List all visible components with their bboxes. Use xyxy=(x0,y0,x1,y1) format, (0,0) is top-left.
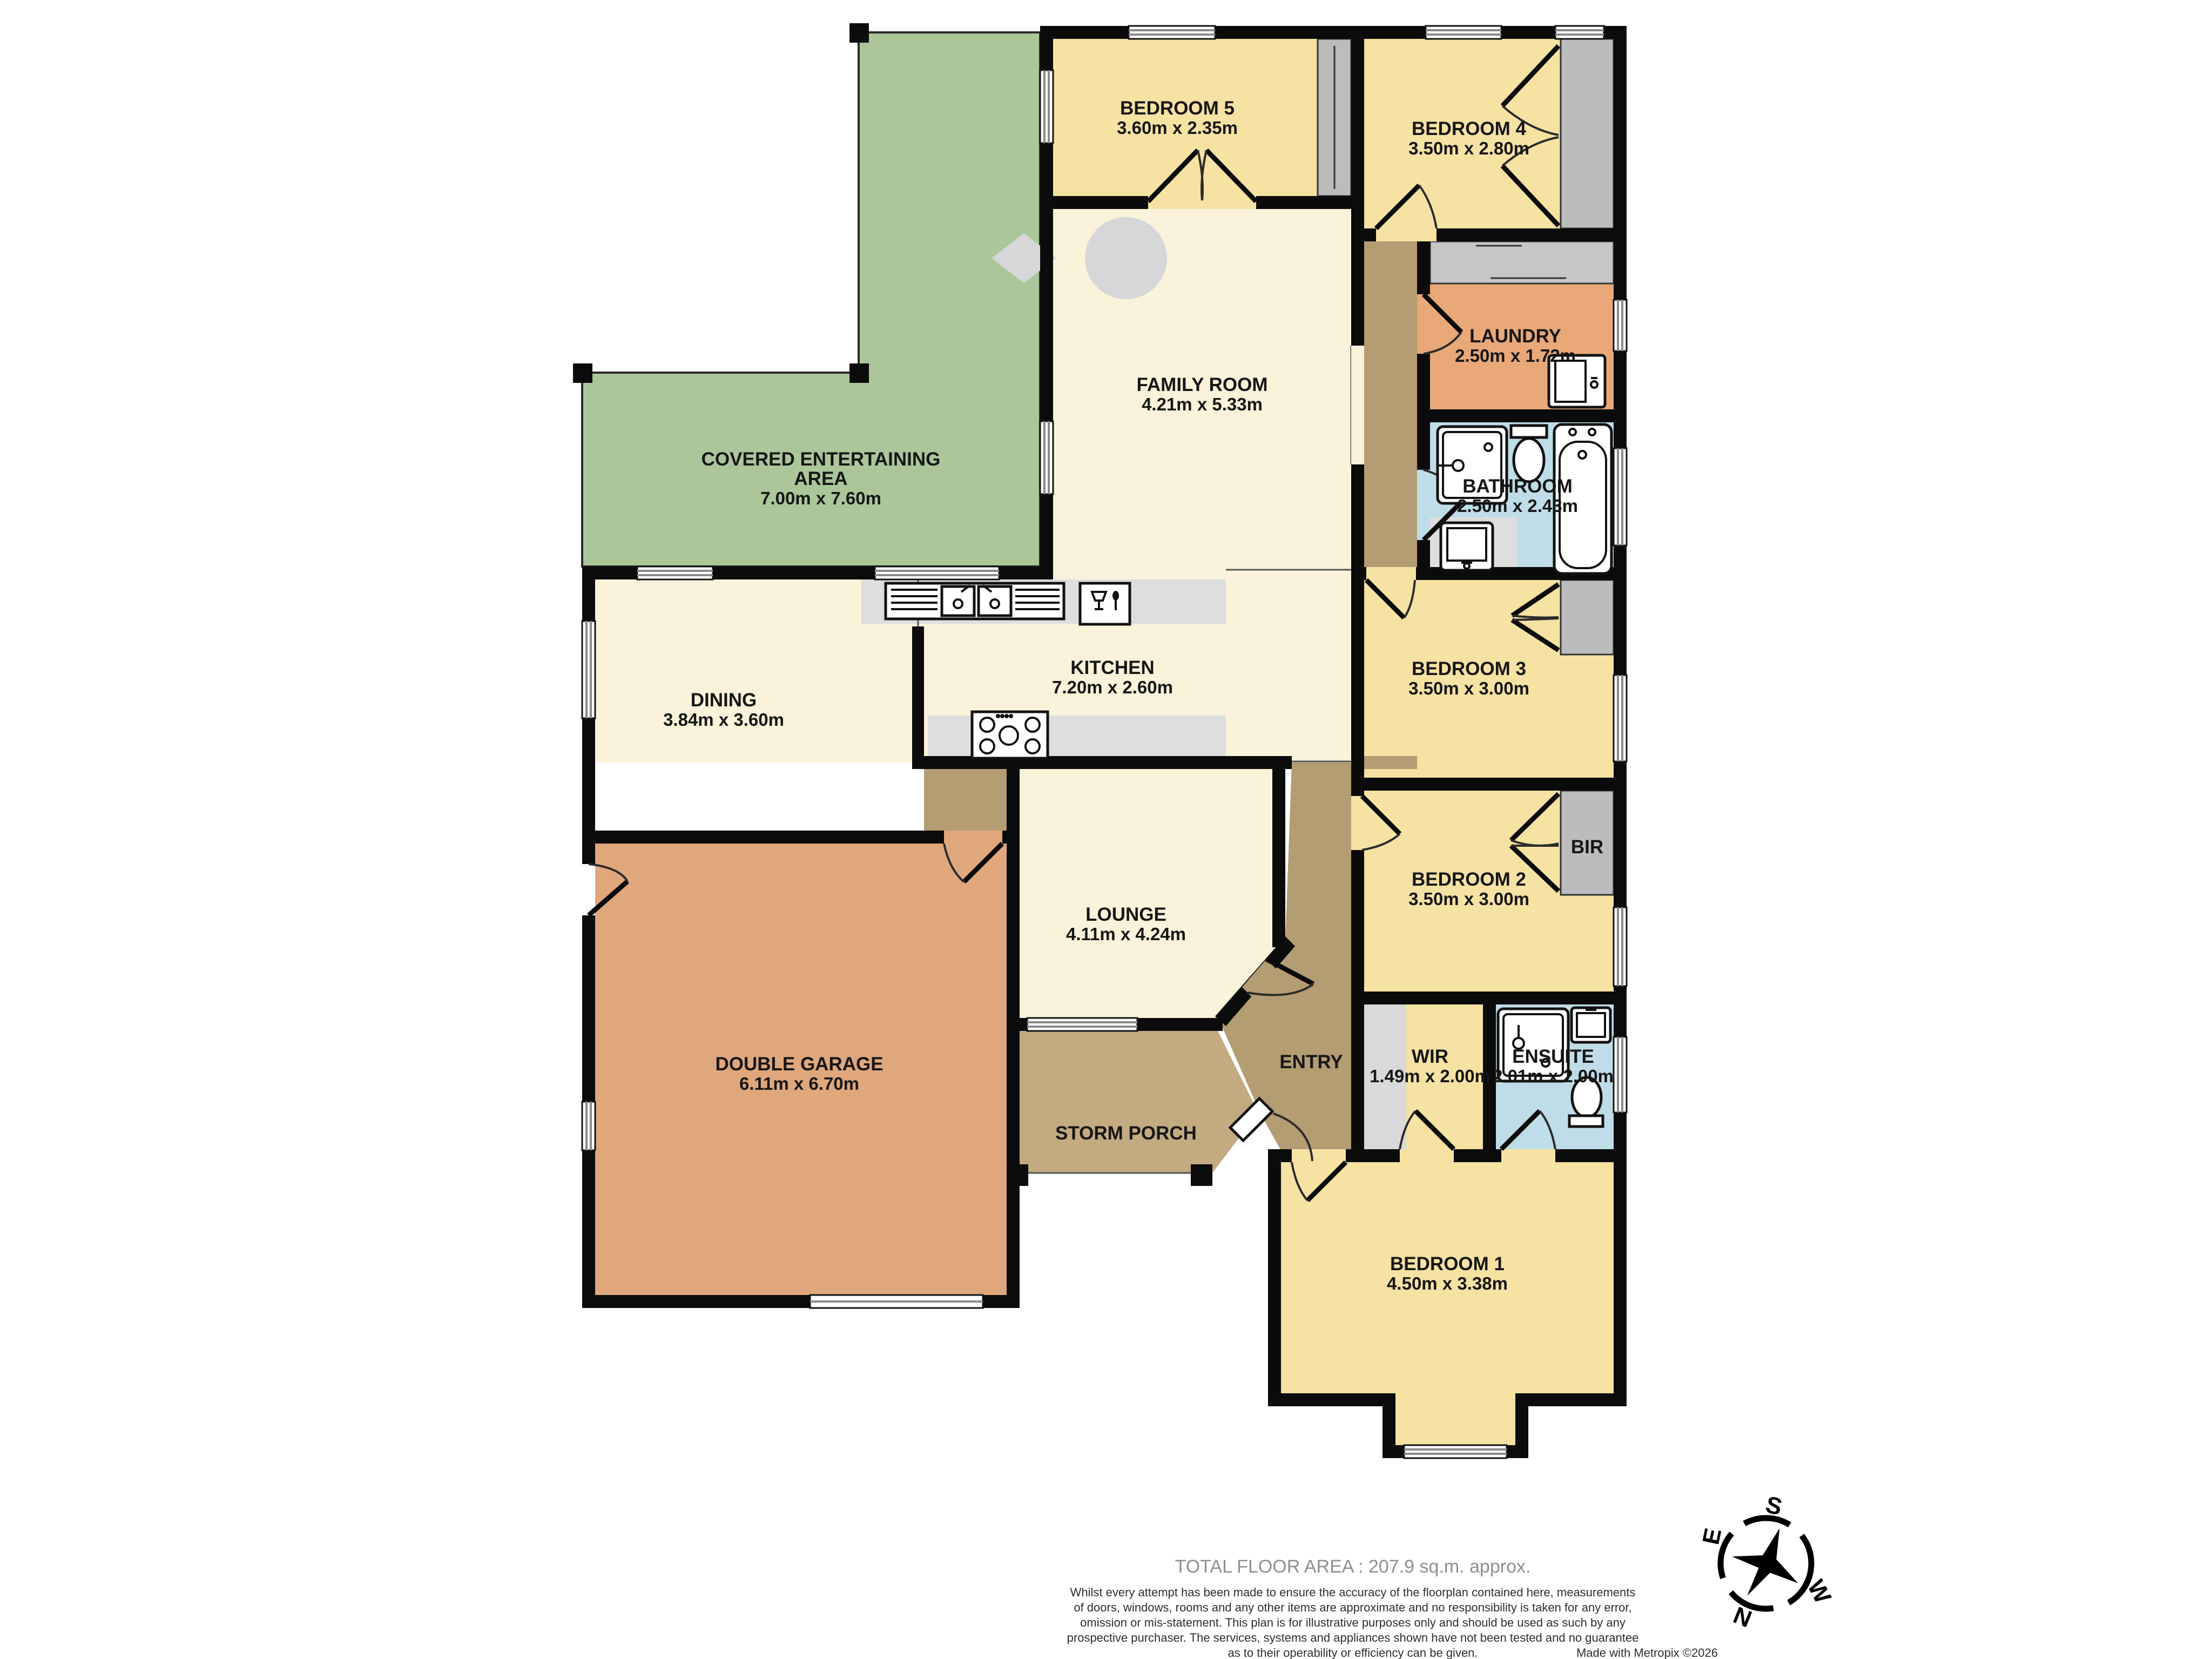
family-room-label: FAMILY ROOM4.21m x 5.33m xyxy=(1136,374,1267,414)
window xyxy=(875,567,999,579)
hall-floor xyxy=(1364,241,1417,580)
window xyxy=(1614,675,1627,761)
bedroom4-label: BEDROOM 43.50m x 2.80m xyxy=(1408,118,1529,158)
bedroom2-label: BEDROOM 23.50m x 3.00m xyxy=(1408,869,1529,909)
svg-text:4.11m x 4.24m: 4.11m x 4.24m xyxy=(1066,924,1186,944)
svg-text:WIR: WIR xyxy=(1412,1046,1448,1067)
floorplan-drawing: COVERED ENTERTAININGAREA7.00m x 7.60m BE… xyxy=(0,0,2212,1659)
svg-text:BEDROOM 3: BEDROOM 3 xyxy=(1412,658,1526,679)
disclaimer-line: prospective purchaser. The services, sys… xyxy=(1067,1631,1639,1644)
stove-icon xyxy=(972,712,1048,758)
laundry-label: LAUNDRY2.50m x 1.72m xyxy=(1455,326,1576,366)
closet-pocket-floor xyxy=(924,769,1007,831)
window xyxy=(1040,421,1053,494)
compass-rose: S E N W xyxy=(1697,1491,1836,1633)
svg-text:7.00m x 7.60m: 7.00m x 7.60m xyxy=(760,488,881,508)
svg-text:3.60m x 2.35m: 3.60m x 2.35m xyxy=(1117,118,1238,138)
svg-text:DOUBLE GARAGE: DOUBLE GARAGE xyxy=(715,1054,883,1075)
svg-text:LAUNDRY: LAUNDRY xyxy=(1469,326,1561,347)
svg-text:3.50m x 2.80m: 3.50m x 2.80m xyxy=(1408,138,1529,158)
window xyxy=(1614,300,1627,351)
bedroom4-robe xyxy=(1561,39,1614,228)
toilet-icon xyxy=(1511,426,1547,482)
svg-text:BEDROOM 1: BEDROOM 1 xyxy=(1390,1253,1505,1274)
entry-label: ENTRY xyxy=(1279,1051,1343,1073)
disclaimer-line: omission or mis-statement. This plan is … xyxy=(1080,1616,1626,1629)
window xyxy=(1129,26,1215,39)
svg-text:1.49m x 2.00m: 1.49m x 2.00m xyxy=(1370,1066,1491,1086)
svg-text:DINING: DINING xyxy=(691,690,757,711)
svg-text:LOUNGE: LOUNGE xyxy=(1085,904,1166,925)
garage-door xyxy=(810,1295,983,1308)
svg-text:AREA: AREA xyxy=(794,468,847,489)
svg-text:6.11m x 6.70m: 6.11m x 6.70m xyxy=(739,1074,859,1094)
window xyxy=(582,621,595,718)
svg-text:BATHROOM: BATHROOM xyxy=(1462,476,1573,497)
svg-text:E: E xyxy=(1697,1526,1727,1547)
svg-text:BIR: BIR xyxy=(1571,837,1603,858)
svg-text:BEDROOM 2: BEDROOM 2 xyxy=(1412,869,1526,890)
disclaimer-line: of doors, windows, rooms and any other i… xyxy=(1074,1601,1631,1614)
dishwasher-icon xyxy=(1080,583,1130,624)
footer: TOTAL FLOOR AREA : 207.9 sq.m. approx. W… xyxy=(1067,1556,1718,1659)
bir-label: BIR xyxy=(1571,837,1603,858)
svg-text:3.84m x 3.60m: 3.84m x 3.60m xyxy=(663,710,784,730)
svg-text:2.50m x 1.72m: 2.50m x 1.72m xyxy=(1455,346,1576,366)
compass-star-icon xyxy=(1727,1522,1805,1603)
svg-text:2.50m x 2.43m: 2.50m x 2.43m xyxy=(1457,496,1578,516)
window xyxy=(1555,26,1604,39)
bedroom3-robe xyxy=(1561,580,1614,655)
disclaimer-line: as to their operability or efficiency ca… xyxy=(1228,1646,1478,1659)
svg-text:FAMILY ROOM: FAMILY ROOM xyxy=(1136,374,1267,395)
svg-text:BEDROOM 5: BEDROOM 5 xyxy=(1120,98,1235,119)
window xyxy=(1614,448,1627,545)
svg-text:ENTRY: ENTRY xyxy=(1279,1051,1343,1073)
bedroom1-label: BEDROOM 14.50m x 3.38m xyxy=(1387,1253,1508,1293)
svg-text:STORM PORCH: STORM PORCH xyxy=(1055,1123,1197,1144)
window xyxy=(582,1102,595,1150)
window xyxy=(1027,1018,1137,1031)
svg-text:3.50m x 3.00m: 3.50m x 3.00m xyxy=(1408,889,1529,909)
window xyxy=(1426,26,1501,39)
window xyxy=(1404,1445,1507,1458)
kitchen-sink-icon xyxy=(886,583,1064,619)
total-floor-area-text: TOTAL FLOOR AREA : 207.9 sq.m. approx. xyxy=(1175,1556,1531,1577)
window xyxy=(1614,1037,1627,1112)
bathroom-vanity-icon xyxy=(1441,523,1493,570)
bedroom5-label: BEDROOM 53.60m x 2.35m xyxy=(1117,98,1238,138)
bathroom-label: BATHROOM2.50m x 2.43m xyxy=(1457,476,1578,516)
bedroom1-bay-floor xyxy=(1382,1393,1528,1445)
window xyxy=(1614,907,1627,986)
svg-text:3.50m x 3.00m: 3.50m x 3.00m xyxy=(1408,678,1529,698)
ensuite-vanity-icon xyxy=(1572,1008,1610,1042)
svg-text:N: N xyxy=(1730,1602,1756,1633)
svg-text:ENSUITE: ENSUITE xyxy=(1512,1046,1594,1067)
window xyxy=(1040,70,1053,143)
disclaimer-line: Whilst every attempt has been made to en… xyxy=(1070,1586,1636,1599)
svg-text:4.50m x 3.38m: 4.50m x 3.38m xyxy=(1387,1273,1508,1293)
garage-label: DOUBLE GARAGE6.11m x 6.70m xyxy=(715,1054,883,1094)
svg-text:S: S xyxy=(1763,1491,1784,1521)
storm-porch-floor xyxy=(1020,1031,1258,1173)
bedroom3-label: BEDROOM 33.50m x 3.00m xyxy=(1408,658,1529,698)
svg-text:4.21m x 5.33m: 4.21m x 5.33m xyxy=(1142,394,1263,414)
linen-cupboard xyxy=(1430,241,1614,284)
window xyxy=(637,567,713,579)
floorplan-page: { "rooms": { "covered": {"line1":"COVERE… xyxy=(0,0,2212,1659)
svg-text:KITCHEN: KITCHEN xyxy=(1070,657,1155,678)
svg-text:2.01m x 2.00m: 2.01m x 2.00m xyxy=(1493,1066,1614,1086)
family-corner-decor xyxy=(1085,217,1167,299)
metropix-credit: Made with Metropix ©2026 xyxy=(1576,1646,1718,1659)
svg-text:7.20m x 2.60m: 7.20m x 2.60m xyxy=(1052,677,1173,697)
svg-text:COVERED ENTERTAINING: COVERED ENTERTAINING xyxy=(702,449,941,470)
storm-porch-label: STORM PORCH xyxy=(1055,1123,1197,1144)
svg-text:BEDROOM 4: BEDROOM 4 xyxy=(1412,118,1527,139)
